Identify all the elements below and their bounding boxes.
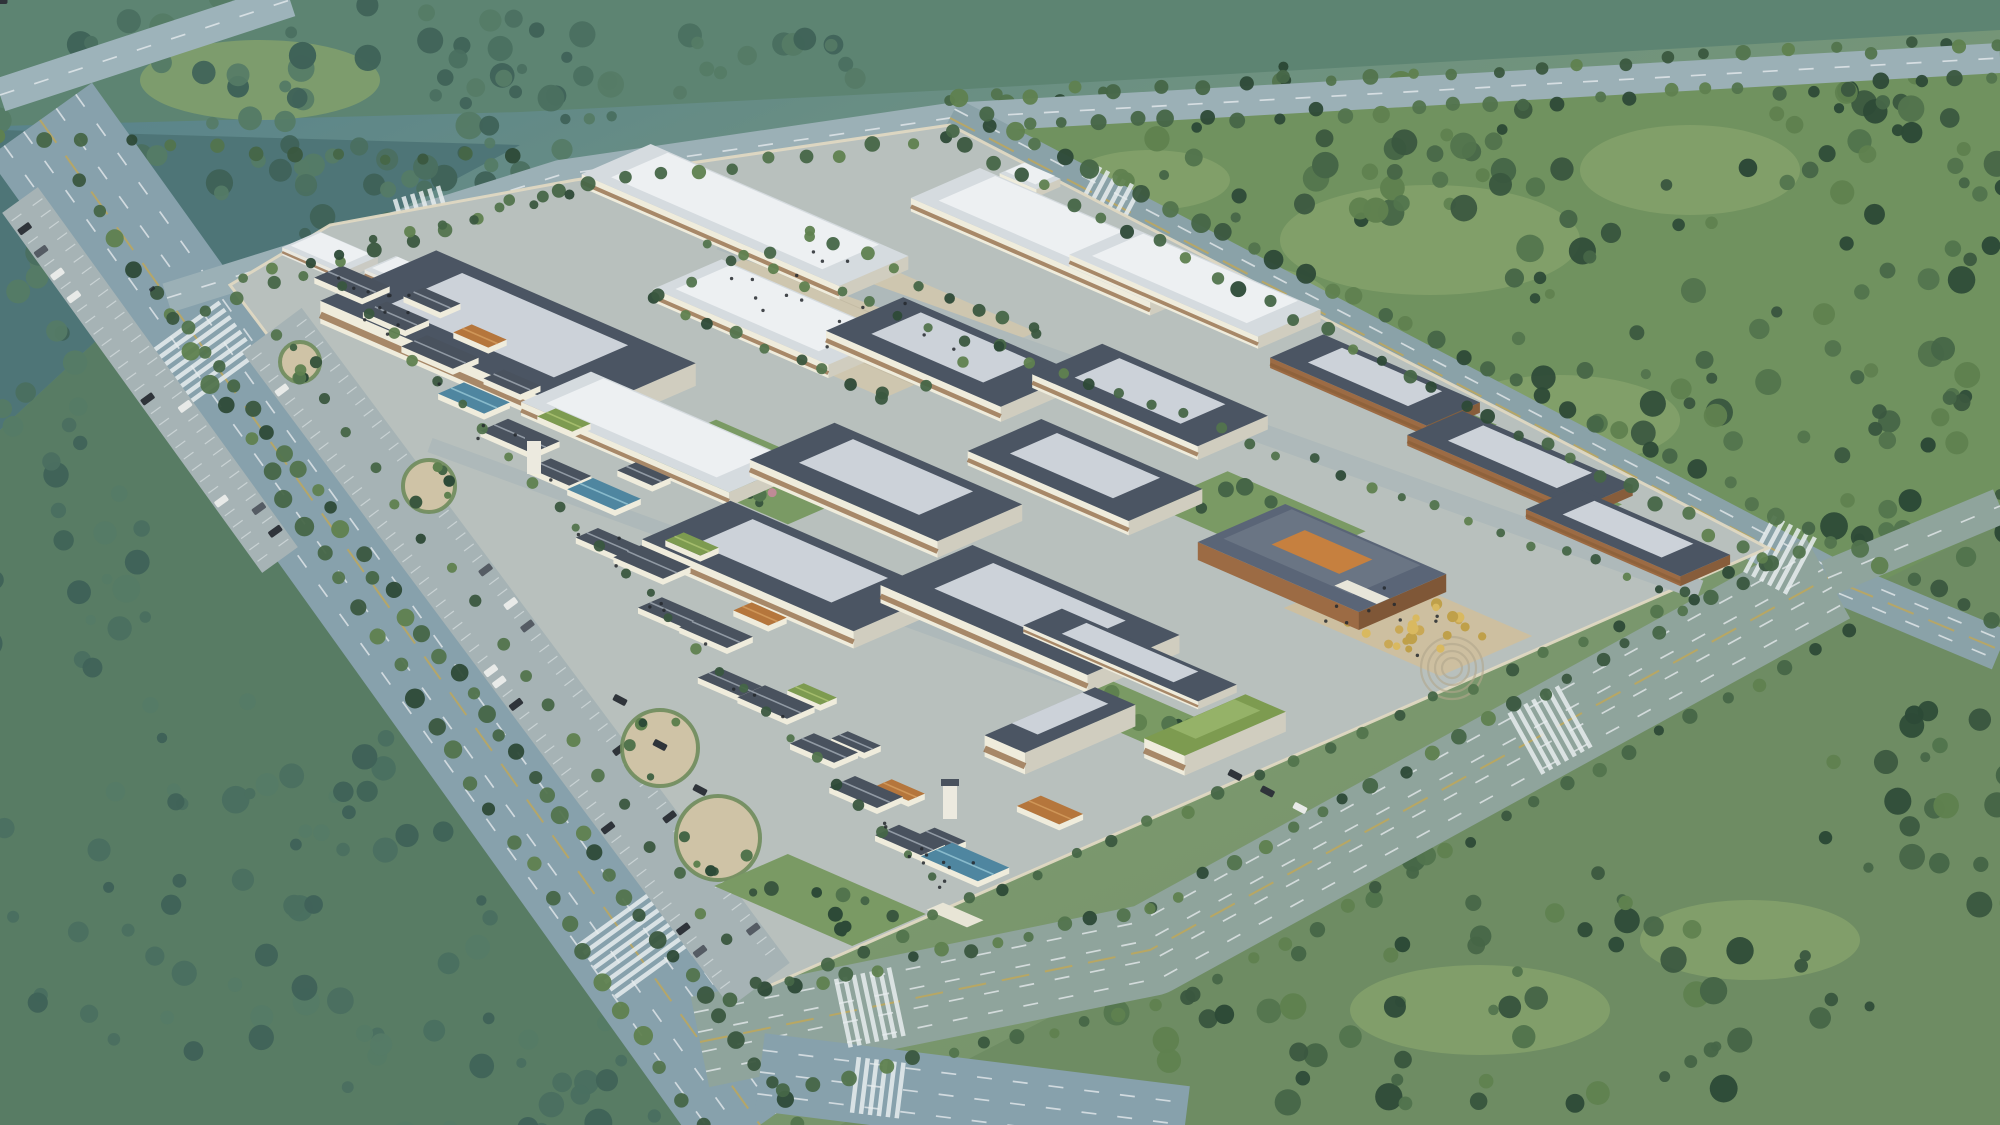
- rendering-canvas: [0, 0, 2000, 1125]
- aerial-rendering: [0, 0, 2000, 1125]
